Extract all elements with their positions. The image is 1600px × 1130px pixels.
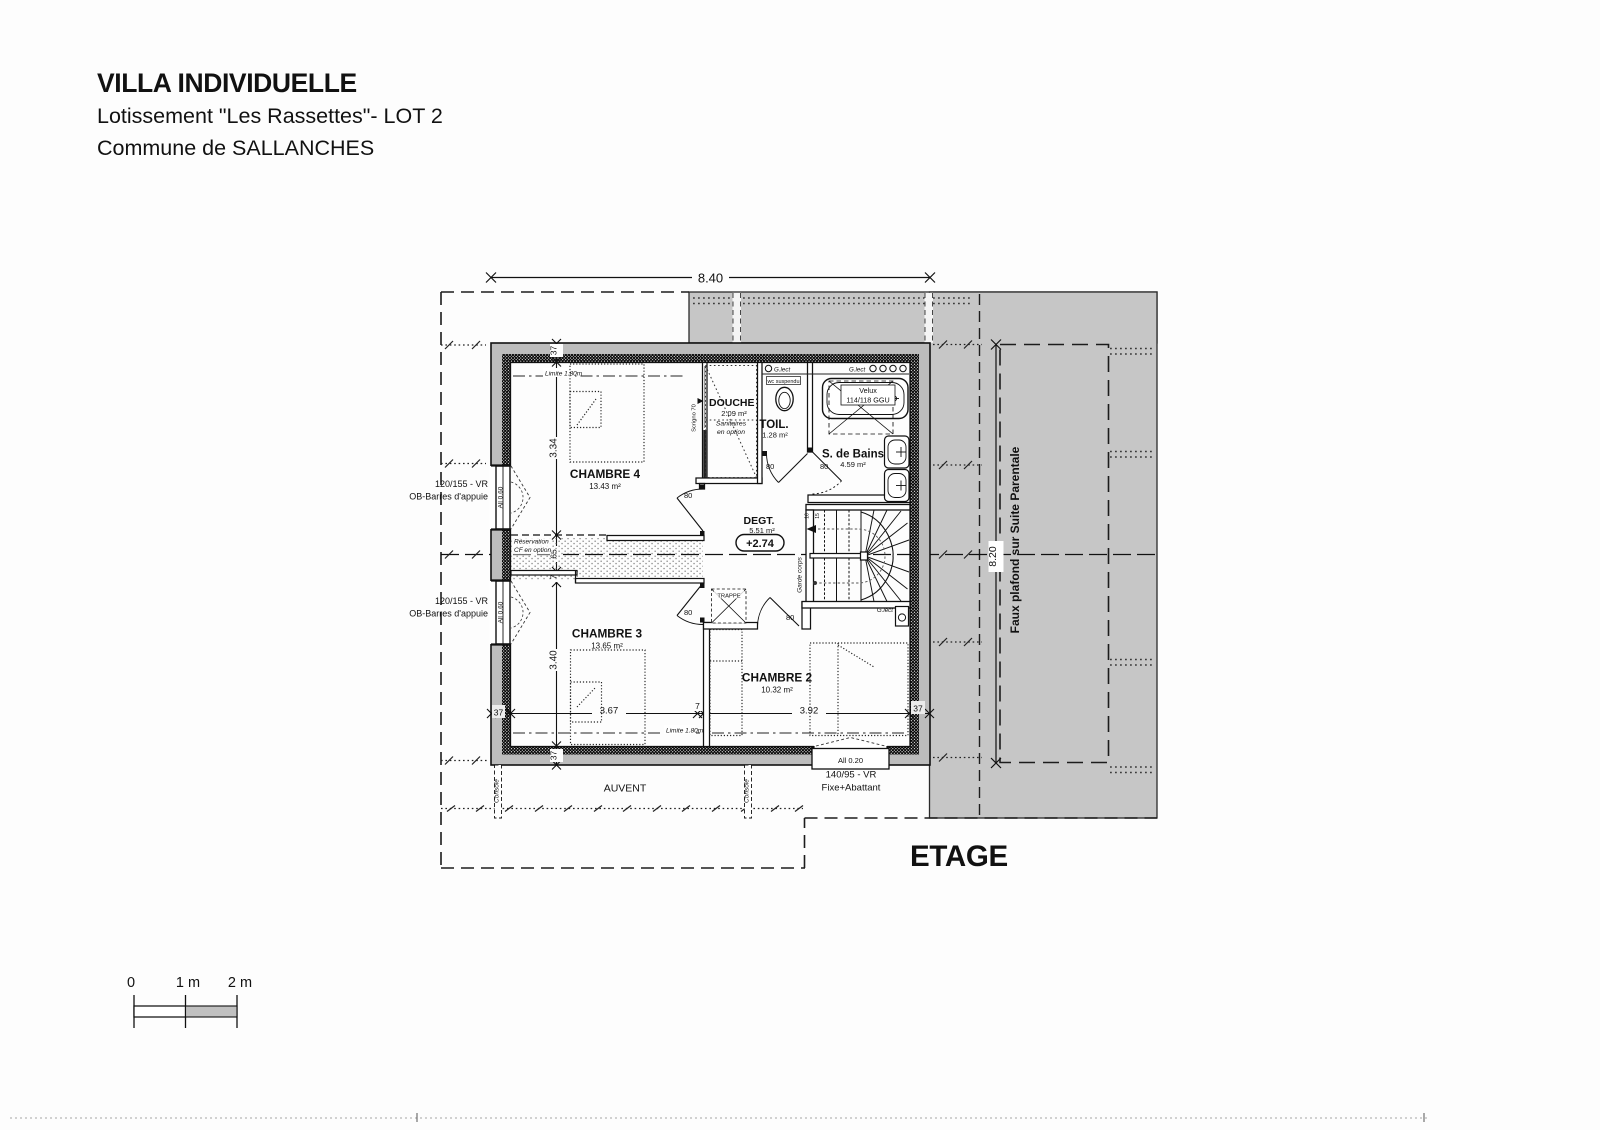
svg-text:37: 37 bbox=[494, 708, 504, 718]
svg-text:120/155 - VR: 120/155 - VR bbox=[435, 479, 489, 489]
svg-text:80: 80 bbox=[766, 462, 774, 471]
svg-text:13.43 m²: 13.43 m² bbox=[589, 482, 621, 491]
svg-text:OB-Barres d'appuie: OB-Barres d'appuie bbox=[409, 492, 488, 502]
svg-text:37: 37 bbox=[549, 751, 559, 761]
svg-text:Sanitaires: Sanitaires bbox=[716, 421, 747, 428]
svg-text:DOUCHE: DOUCHE bbox=[709, 397, 755, 409]
svg-text:10.32 m²: 10.32 m² bbox=[761, 686, 793, 695]
svg-text:15: 15 bbox=[815, 513, 821, 519]
svg-text:Garde corps: Garde corps bbox=[797, 556, 804, 593]
svg-text:5.51 m²: 5.51 m² bbox=[749, 526, 775, 535]
svg-text:CHAMBRE 3: CHAMBRE 3 bbox=[572, 627, 643, 641]
svg-text:S. de Bains: S. de Bains bbox=[822, 449, 884, 461]
svg-text:Faux plafond sur Suite Parent: Faux plafond sur Suite Parentale bbox=[1008, 446, 1022, 633]
svg-text:All 0.60: All 0.60 bbox=[498, 486, 505, 508]
svg-text:120/155 - VR: 120/155 - VR bbox=[435, 596, 489, 606]
svg-text:80: 80 bbox=[684, 491, 692, 500]
svg-text:Scrigno 70: Scrigno 70 bbox=[692, 404, 698, 432]
svg-text:en option: en option bbox=[717, 429, 745, 436]
svg-text:80: 80 bbox=[786, 613, 794, 622]
svg-text:0: 0 bbox=[127, 975, 135, 991]
svg-text:Commune de SALLANCHES: Commune de SALLANCHES bbox=[97, 136, 374, 160]
svg-text:Limite 1.80m: Limite 1.80m bbox=[666, 728, 704, 735]
svg-text:8.40: 8.40 bbox=[698, 271, 723, 286]
svg-text:TRAPPE: TRAPPE bbox=[717, 594, 740, 600]
svg-text:80: 80 bbox=[820, 462, 828, 471]
svg-text:Velux: Velux bbox=[859, 386, 877, 395]
svg-text:Lotissement "Les Rassettes"- L: Lotissement "Les Rassettes"- LOT 2 bbox=[97, 104, 443, 128]
svg-text:37: 37 bbox=[913, 704, 923, 714]
svg-text:4.59 m²: 4.59 m² bbox=[840, 460, 866, 469]
svg-text:1.28 m²: 1.28 m² bbox=[762, 431, 788, 440]
svg-text:80: 80 bbox=[684, 608, 692, 617]
svg-text:OB-Barres d'appuie: OB-Barres d'appuie bbox=[409, 609, 488, 619]
svg-text:2.09 m²: 2.09 m² bbox=[721, 409, 747, 418]
svg-text:All 0.20: All 0.20 bbox=[838, 756, 863, 765]
svg-text:TOIL.: TOIL. bbox=[759, 419, 788, 431]
svg-text:wc suspendu: wc suspendu bbox=[766, 379, 799, 385]
svg-text:Réservation: Réservation bbox=[514, 539, 549, 546]
svg-text:Console: Console bbox=[744, 779, 751, 803]
svg-text:G.lect: G.lect bbox=[849, 367, 865, 374]
svg-text:114/118 GGU: 114/118 GGU bbox=[846, 396, 889, 405]
svg-text:CHAMBRE 2: CHAMBRE 2 bbox=[742, 671, 813, 685]
svg-text:CF en option: CF en option bbox=[514, 547, 551, 554]
svg-text:G.lect: G.lect bbox=[877, 607, 893, 614]
svg-text:2 m: 2 m bbox=[228, 975, 252, 991]
svg-text:13.65 m²: 13.65 m² bbox=[591, 642, 623, 651]
svg-text:1 m: 1 m bbox=[176, 975, 200, 991]
svg-text:37: 37 bbox=[549, 346, 559, 356]
svg-text:CHAMBRE 4: CHAMBRE 4 bbox=[570, 467, 641, 481]
svg-text:Console: Console bbox=[494, 779, 501, 803]
svg-text:+2.74: +2.74 bbox=[746, 538, 775, 550]
svg-text:All 0.60: All 0.60 bbox=[498, 601, 505, 623]
svg-text:Fixe+Abattant: Fixe+Abattant bbox=[822, 783, 881, 794]
svg-text:ETAGE: ETAGE bbox=[910, 840, 1008, 873]
svg-text:AUVENT: AUVENT bbox=[604, 783, 647, 795]
svg-text:Limite 1.80m: Limite 1.80m bbox=[545, 371, 583, 378]
svg-text:VILLA INDIVIDUELLE: VILLA INDIVIDUELLE bbox=[97, 68, 357, 98]
svg-text:G.lect: G.lect bbox=[774, 367, 790, 374]
svg-text:7: 7 bbox=[695, 701, 700, 711]
svg-text:3.67: 3.67 bbox=[600, 706, 619, 717]
svg-text:3.92: 3.92 bbox=[800, 706, 819, 717]
svg-text:3.34: 3.34 bbox=[549, 438, 560, 458]
svg-text:8.20: 8.20 bbox=[987, 546, 999, 567]
svg-text:3.40: 3.40 bbox=[549, 650, 560, 670]
svg-text:140/95 - VR: 140/95 - VR bbox=[826, 770, 877, 781]
svg-text:16: 16 bbox=[805, 513, 811, 519]
